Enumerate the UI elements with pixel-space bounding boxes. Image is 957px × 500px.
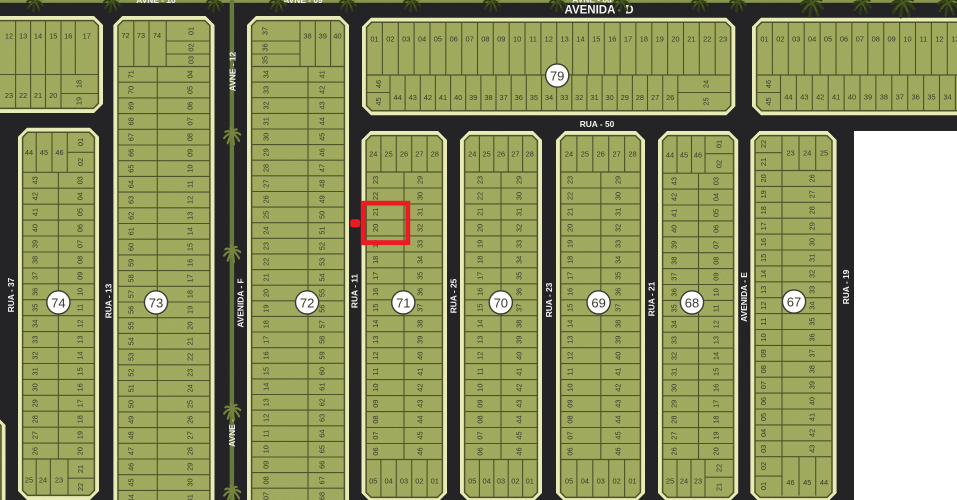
svg-text:71: 71 [396, 295, 410, 310]
svg-text:RUA - 50: RUA - 50 [580, 119, 615, 129]
svg-text:73: 73 [149, 295, 163, 310]
svg-text:AVENIDA - E: AVENIDA - E [739, 272, 749, 322]
svg-text:RUA - 11: RUA - 11 [349, 274, 359, 308]
svg-text:79: 79 [550, 69, 564, 84]
svg-text:69: 69 [591, 295, 605, 310]
svg-text:74: 74 [51, 295, 65, 310]
svg-text:RUA - 21: RUA - 21 [647, 281, 657, 316]
svg-text:AVNE - 12: AVNE - 12 [227, 51, 237, 91]
svg-text:70: 70 [494, 295, 508, 310]
svg-text:RUA - 13: RUA - 13 [103, 283, 113, 318]
svg-text:RUA - 37: RUA - 37 [6, 277, 16, 312]
svg-text:RUA - 25: RUA - 25 [449, 278, 459, 313]
svg-text:AVNE - 09: AVNE - 09 [283, 0, 323, 5]
svg-text:67: 67 [787, 295, 801, 310]
svg-text:72: 72 [300, 295, 314, 310]
svg-text:RUA - 23: RUA - 23 [544, 282, 554, 317]
svg-text:RUA - 19: RUA - 19 [841, 269, 851, 304]
svg-text:AVNE - 10: AVNE - 10 [136, 0, 176, 5]
svg-text:AVENIDA - D: AVENIDA - D [565, 5, 634, 17]
svg-text:AVNE - 08: AVNE - 08 [572, 0, 612, 5]
svg-text:AVNE -: AVNE - [227, 419, 237, 447]
svg-text:AVENIDA - F: AVENIDA - F [235, 278, 245, 327]
svg-text:68: 68 [685, 295, 699, 310]
